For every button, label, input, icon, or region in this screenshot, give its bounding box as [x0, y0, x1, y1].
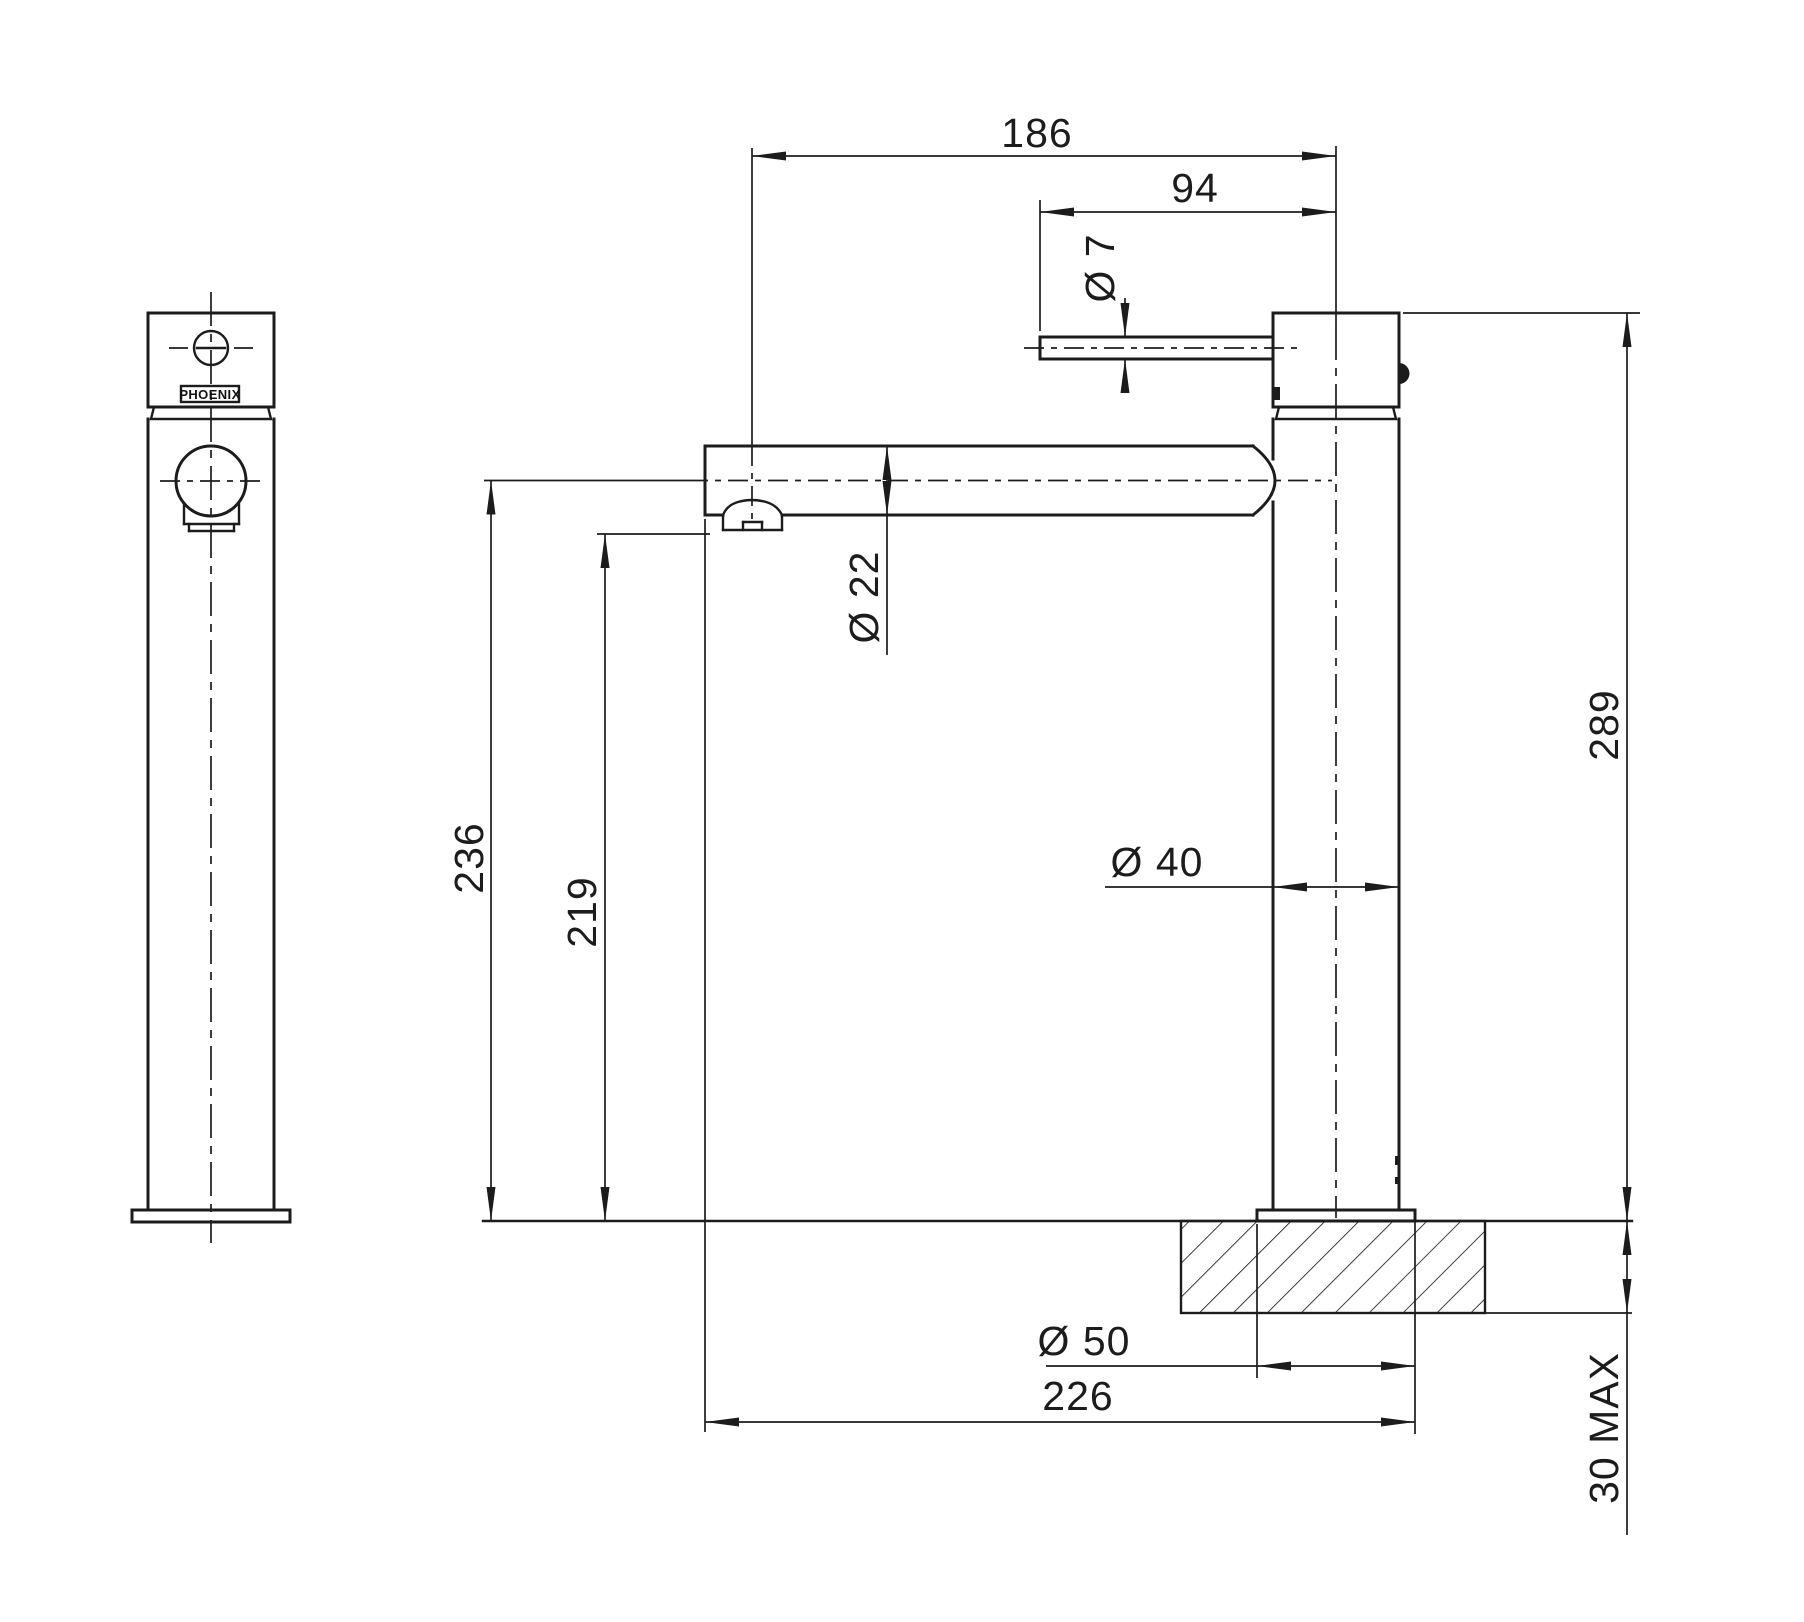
dim-spout-diameter: Ø 22: [841, 446, 892, 655]
dim-label-body-diameter: Ø 40: [1111, 839, 1204, 885]
dim-label-height-outlet: 219: [559, 876, 605, 947]
cap-index-button: [1399, 363, 1410, 384]
dim-label-mounting-thickness: 30 MAX: [1581, 1352, 1627, 1504]
dim-mounting-thickness: 30 MAX: [1581, 1221, 1632, 1535]
dim-label-handle-length: 94: [1171, 165, 1219, 211]
brand-logo: PHOENIX: [179, 387, 240, 402]
cap-setscrew-detail: [1273, 387, 1280, 400]
body-grubscrew-mark: [1395, 1156, 1400, 1165]
dim-label-base-diameter: Ø 50: [1038, 1318, 1131, 1364]
technical-drawing: PHOENIX: [0, 0, 1804, 1622]
dim-label-reach: 186: [1001, 110, 1072, 156]
dim-label-overall-height: 289: [1581, 689, 1627, 760]
dim-height-outlet: 219: [559, 534, 710, 1221]
bench-hatch: [1181, 1221, 1485, 1313]
body-grubscrew-mark2: [1395, 1177, 1399, 1184]
drawing-sheet: PHOENIX: [0, 0, 1804, 1622]
dimensions: 186 94 Ø 7 Ø 22: [446, 110, 1640, 1535]
spout: [705, 446, 1275, 515]
dim-height-spout-centre: 236: [446, 481, 688, 1222]
dim-reach-to-outlet: 186: [752, 110, 1336, 524]
dim-body-diameter: Ø 40: [1105, 839, 1399, 892]
dim-label-spout-diameter: Ø 22: [841, 551, 887, 644]
front-view: PHOENIX: [132, 292, 290, 1243]
side-view: [688, 146, 1415, 1221]
dim-overall-height: 289: [1403, 313, 1640, 1221]
bench-section: [483, 1221, 1632, 1313]
dim-label-handle-diameter: Ø 7: [1077, 233, 1123, 302]
dim-label-height-spout: 236: [446, 822, 492, 893]
dim-handle-diameter: Ø 7: [1077, 233, 1130, 393]
dim-label-overall-projection: 226: [1042, 1373, 1113, 1419]
